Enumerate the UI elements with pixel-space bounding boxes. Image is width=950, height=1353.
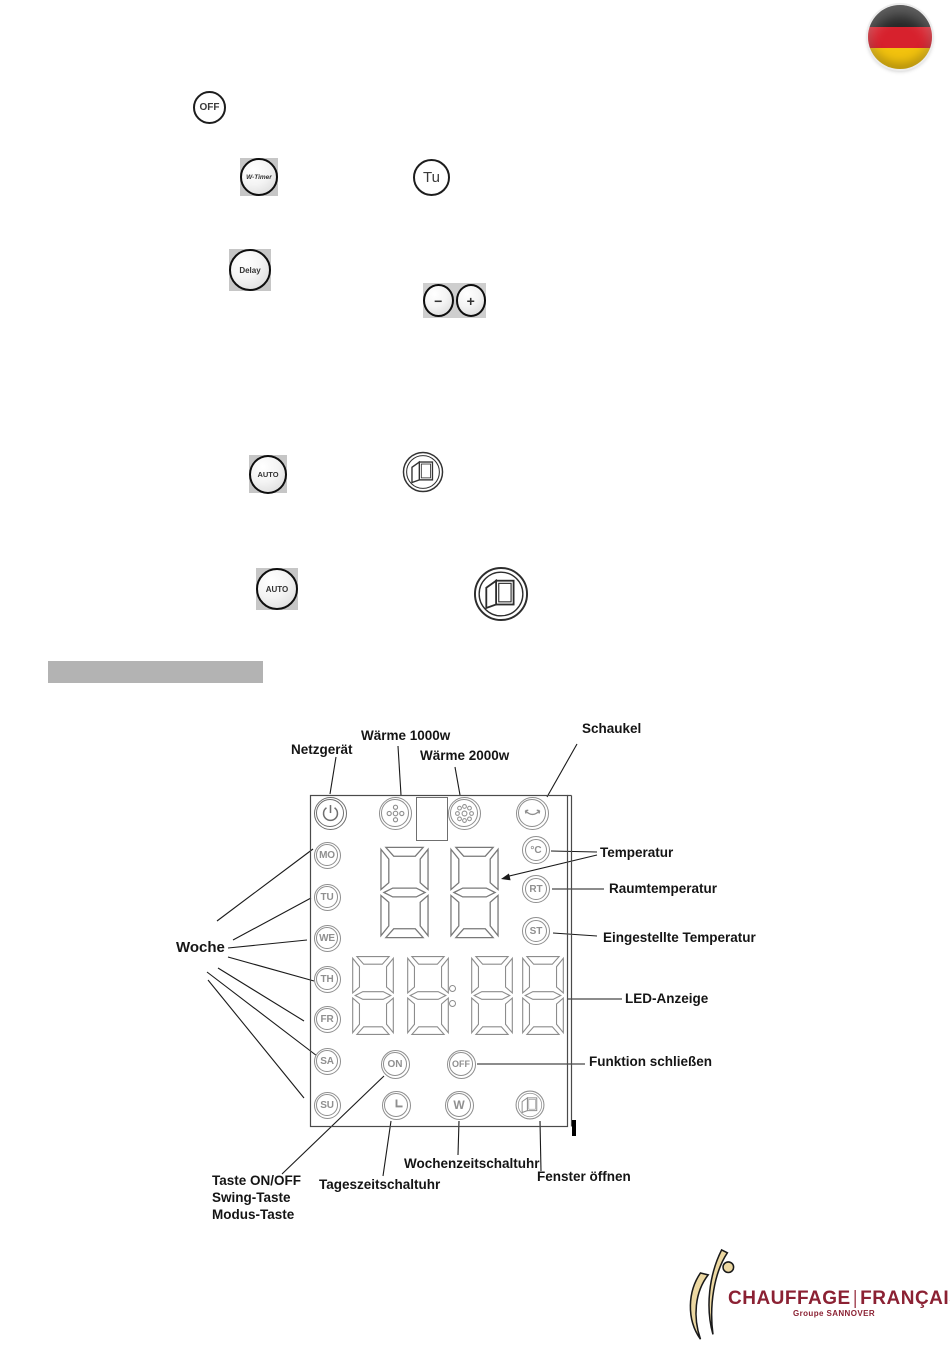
label-led-anzeige: LED-Anzeige bbox=[625, 990, 708, 1007]
weekday-we-label: WE bbox=[319, 933, 335, 944]
off-button-label: OFF bbox=[200, 102, 220, 113]
weekday-tu: TU bbox=[314, 884, 341, 911]
brand-subtitle: Groupe SANNOVER bbox=[793, 1309, 875, 1318]
display-blank-box bbox=[416, 797, 448, 841]
weekday-sa-label: SA bbox=[320, 1056, 334, 1067]
redacted-heading-bar bbox=[48, 661, 263, 683]
auto-button-2: AUTO bbox=[256, 568, 298, 610]
auto-label-2: AUTO bbox=[266, 585, 289, 594]
auto-label-1: AUTO bbox=[257, 470, 278, 479]
temp-digit-2 bbox=[449, 845, 500, 940]
label-waerme-2000w: Wärme 2000w bbox=[420, 747, 509, 764]
label-waerme-1000w: Wärme 1000w bbox=[361, 727, 450, 744]
weekday-sa: SA bbox=[314, 1048, 341, 1075]
weekday-mo: MO bbox=[314, 842, 341, 869]
clock-digit-4 bbox=[521, 953, 565, 1038]
room-temp-indicator: RT bbox=[522, 875, 550, 903]
label-funktion-schliessen: Funktion schließen bbox=[589, 1053, 712, 1070]
weekday-su: SU bbox=[314, 1092, 341, 1119]
label-wochenzeitschaltuhr: Wochenzeitschaltuhr bbox=[404, 1155, 540, 1172]
delay-label: Delay bbox=[239, 266, 260, 275]
weekday-tu-label: TU bbox=[321, 892, 334, 903]
auto-button-icon-2: AUTO bbox=[256, 568, 298, 610]
minus-plus-buttons-icon: − + bbox=[423, 283, 486, 318]
label-modus-taste: Modus-Taste bbox=[212, 1206, 301, 1223]
heat-2000w-icon bbox=[448, 797, 481, 830]
label-taste-on-off: Taste ON/OFF bbox=[212, 1172, 301, 1189]
label-temperatur: Temperatur bbox=[600, 844, 673, 861]
minus-button: − bbox=[423, 284, 454, 317]
on-key: ON bbox=[381, 1050, 410, 1079]
room-temp-label: RT bbox=[529, 884, 542, 895]
label-tageszeitschaltuhr: Tageszeitschaltuhr bbox=[319, 1176, 440, 1193]
label-taste-group: Taste ON/OFF Swing-Taste Modus-Taste bbox=[212, 1172, 301, 1223]
weekday-we: WE bbox=[314, 925, 341, 952]
brand-left: CHAUFFAGE bbox=[728, 1288, 851, 1309]
weekday-mo-label: MO bbox=[319, 850, 335, 861]
tu-button-icon: Tu bbox=[413, 159, 450, 196]
german-flag-icon bbox=[868, 5, 932, 69]
off-key: OFF bbox=[447, 1050, 476, 1079]
auto-button-icon-1: AUTO bbox=[249, 455, 287, 493]
plus-button: + bbox=[456, 284, 487, 317]
weekday-th: TH bbox=[314, 966, 341, 993]
auto-button-1: AUTO bbox=[249, 455, 287, 494]
delay-button: Delay bbox=[229, 249, 271, 291]
weekday-su-label: SU bbox=[320, 1100, 334, 1111]
clock-digit-2 bbox=[406, 953, 450, 1038]
open-window-panel-icon bbox=[515, 1090, 545, 1120]
week-timer-label: W bbox=[453, 1098, 464, 1112]
minus-label: − bbox=[434, 293, 442, 309]
label-woche: Woche bbox=[176, 939, 225, 956]
celsius-label: °C bbox=[530, 845, 541, 856]
label-fenster-oeffnen: Fenster öffnen bbox=[537, 1168, 631, 1185]
power-icon bbox=[314, 797, 347, 830]
label-netzgeraet: Netzgerät bbox=[291, 741, 353, 758]
w-timer-label: W-Timer bbox=[246, 174, 272, 181]
heat-1000w-icon bbox=[379, 797, 412, 830]
w-timer-button-icon: W-Timer bbox=[240, 158, 278, 196]
delay-button-icon: Delay bbox=[229, 249, 271, 291]
off-button-icon: OFF bbox=[193, 91, 226, 124]
brand-divider: | bbox=[851, 1288, 860, 1309]
manual-page: OFF W-Timer Tu Delay − + AUTO AUTO bbox=[0, 0, 950, 1353]
weekday-th-label: TH bbox=[321, 974, 334, 985]
clock-digit-3 bbox=[470, 953, 514, 1038]
label-eingestellte-temperatur: Eingestellte Temperatur bbox=[603, 929, 756, 946]
set-temp-label: ST bbox=[530, 926, 543, 937]
brand-right: FRANÇAIS bbox=[860, 1288, 950, 1309]
week-timer-key: W bbox=[445, 1091, 474, 1120]
day-timer-clock-icon bbox=[382, 1091, 411, 1120]
set-temp-indicator: ST bbox=[522, 917, 550, 945]
brand-wordmark: CHAUFFAGE|FRANÇAIS bbox=[728, 1288, 950, 1310]
w-timer-button: W-Timer bbox=[240, 158, 278, 196]
tu-button-label: Tu bbox=[423, 169, 440, 186]
label-schaukel: Schaukel bbox=[582, 720, 641, 737]
weekday-fr: FR bbox=[314, 1006, 341, 1033]
open-window-icon-2 bbox=[473, 566, 529, 622]
colon-dot-top bbox=[449, 985, 456, 992]
weekday-fr-label: FR bbox=[321, 1014, 334, 1025]
celsius-indicator: °C bbox=[522, 836, 550, 864]
clock-digit-1 bbox=[351, 953, 395, 1038]
on-key-label: ON bbox=[388, 1059, 403, 1070]
label-raumtemperatur: Raumtemperatur bbox=[609, 880, 717, 897]
colon-dot-bottom bbox=[449, 1000, 456, 1007]
label-swing-taste: Swing-Taste bbox=[212, 1189, 301, 1206]
temp-digit-1 bbox=[379, 845, 430, 940]
open-window-icon-1 bbox=[402, 451, 444, 493]
swing-icon bbox=[516, 797, 549, 830]
plus-label: + bbox=[467, 293, 475, 309]
off-key-label: OFF bbox=[452, 1059, 470, 1069]
